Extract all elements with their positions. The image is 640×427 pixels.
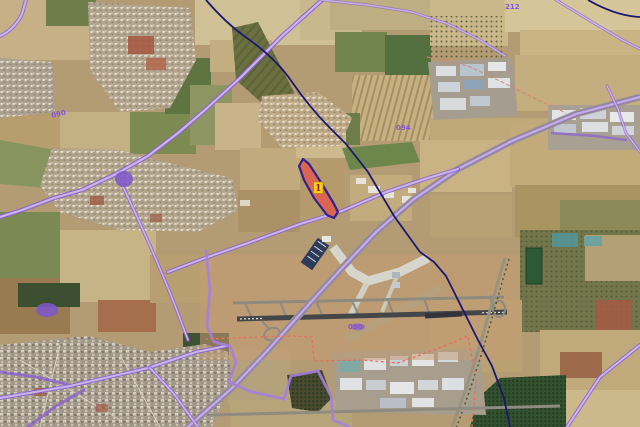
- road-code-label: 212: [505, 3, 520, 11]
- parcel-marker-label: 1: [315, 184, 321, 194]
- teal-roof-buildings: [552, 233, 578, 247]
- industrial-estate-top-right: [428, 58, 518, 120]
- reservoir-pond: [526, 248, 542, 284]
- parcel-marker[interactable]: 1: [314, 182, 324, 194]
- map-canvas[interactable]: 1 090 212 094 090: [0, 0, 640, 427]
- city-bottom-left: [0, 336, 232, 427]
- village-left-edge: [0, 58, 55, 118]
- road-code-label: 094: [396, 124, 411, 132]
- road-code-label: 090: [348, 323, 363, 331]
